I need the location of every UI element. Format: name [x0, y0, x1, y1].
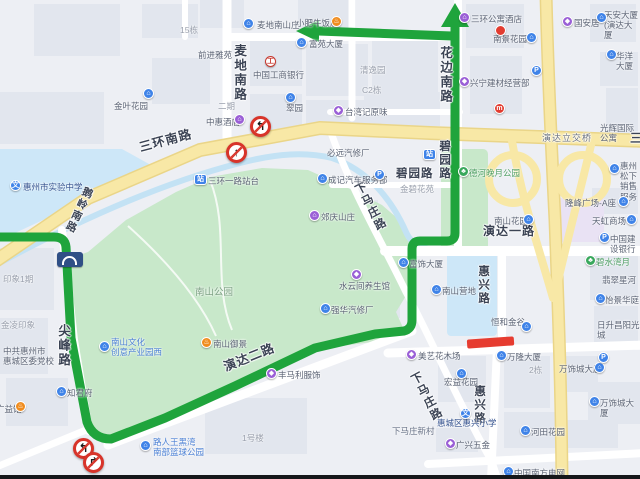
poi-label: 中国工商银行 — [253, 70, 304, 80]
poi-label: 富饰大厦 — [409, 259, 443, 269]
poi-label: 万饰城大厦 — [600, 398, 640, 418]
road-label: 惠兴路 — [473, 385, 485, 426]
road-label: 演达一路 — [483, 225, 535, 238]
hotel-icon: ⌂ — [234, 114, 245, 125]
poi-label: 南山公园 — [195, 287, 233, 298]
poi-label: 万隆大厦 — [507, 352, 541, 362]
poi-label: 富苑大厦 — [309, 39, 343, 49]
shopping-icon: ◆ — [406, 349, 417, 360]
poi-label: 金叶花园 — [114, 101, 148, 111]
poi-label: 兴宁建材经营部 — [470, 78, 530, 88]
road-label: 花边南路 — [438, 46, 451, 104]
park-icon: ♣ — [458, 166, 469, 177]
building-icon: ⌂ — [143, 88, 154, 99]
road-label: 三环南路 — [138, 128, 194, 155]
poi-label: 德河晚月公园 — [469, 168, 520, 178]
building-icon: ⌂ — [589, 396, 600, 407]
building-icon: ⌂ — [609, 163, 620, 174]
busstop-icon: 站 — [194, 174, 207, 185]
building-icon: ⌂ — [496, 350, 507, 361]
poi-label: 强华汽修厂 — [331, 305, 374, 315]
building-icon: ⌂ — [606, 49, 617, 60]
poi-label: 下马庄新村 — [392, 426, 435, 436]
poi-label: 三环公寓酒店 — [471, 14, 522, 24]
poi-label: 前进雅苑 — [198, 50, 232, 60]
poi-label: 必远汽修厂 — [327, 148, 370, 158]
road-label: 惠兴路 — [477, 265, 489, 306]
shopping-icon: ◆ — [333, 105, 344, 116]
poi-label: 15栋 — [180, 25, 198, 35]
turn-arrow-glyph: ↑ — [229, 145, 244, 160]
road-label: 下马庄路 — [352, 180, 388, 233]
poi-label: 碧水湾月 — [596, 257, 630, 267]
busstop-icon: 站 — [423, 149, 436, 160]
building-icon: ⌂ — [521, 321, 532, 332]
building-icon: ⌂ — [317, 173, 328, 184]
parking-icon: P — [374, 169, 385, 180]
building-icon: ⌂ — [456, 368, 467, 379]
school-icon: 文 — [10, 180, 21, 191]
bridge-icon — [57, 252, 83, 267]
poi-label: 恒和金谷 — [491, 317, 525, 327]
road-label: 鹅岭南路 — [63, 185, 94, 235]
poi-label: 二期 — [218, 101, 235, 111]
poi-label: C2栋 — [362, 85, 381, 95]
road-label: 麦地南路 — [232, 44, 245, 102]
building-icon: ⌂ — [431, 284, 442, 295]
poi-label: 翠园 — [286, 103, 303, 113]
label-layer: 三环南路三麦地南路花边南路碧园路碧园路下马庄路下马庄路演达一路演达二路尖峰路惠兴… — [0, 0, 640, 479]
poi-label: 南山御景 — [213, 339, 247, 349]
restaurant-icon: ♨ — [201, 337, 212, 348]
map-canvas[interactable]: 三环南路三麦地南路花边南路碧园路碧园路下马庄路下马庄路演达一路演达二路尖峰路惠兴… — [0, 0, 640, 479]
shopping-icon: ◆ — [266, 368, 277, 379]
poi-label: 南山文化 创意产业园西 — [111, 337, 162, 357]
parking-icon: P — [599, 232, 610, 243]
poi-label: 清逸园 — [360, 65, 386, 75]
turn-arrow-glyph: ↰ — [253, 119, 268, 134]
restaurant-icon: ♨ — [15, 401, 26, 412]
poi-label: 水云间养生馆 — [339, 281, 390, 291]
poi-label: 麦地南山庄 — [257, 20, 300, 30]
building-icon: ⌂ — [523, 214, 534, 225]
poi-label: 郊庆山庄 — [321, 212, 355, 222]
poi-label: 广兴五金 — [456, 440, 490, 450]
traffic-sign-no-straight: ↑ — [226, 142, 247, 163]
poi-label: 美艺花木场 — [418, 351, 461, 361]
building-icon: ⌂ — [320, 303, 331, 314]
poi-label: 印象1期 — [3, 274, 33, 284]
hotel-icon: ⌂ — [309, 210, 320, 221]
building-icon: ⌂ — [595, 293, 606, 304]
poi-label: 河田花园 — [531, 427, 565, 437]
restaurant-icon: ♨ — [331, 16, 342, 27]
poi-label: 惠州市实验中学 — [23, 182, 83, 192]
poi-label: 丰马利服饰 — [278, 370, 321, 380]
road-label: 演达立交桥 — [542, 134, 592, 143]
building-icon: ⌂ — [285, 92, 296, 103]
poi-label: 南山营地 — [442, 286, 476, 296]
poi-label: 1号楼 — [242, 433, 264, 443]
turn-arrow-glyph: ↱ — [86, 455, 101, 470]
poi-label: 知君府 — [67, 388, 93, 398]
shopping-icon: ◆ — [445, 438, 456, 449]
building-icon: ⌂ — [594, 362, 605, 373]
road-label: 三 — [630, 132, 640, 145]
poi-label: 天安大厦 (演达大厦 — [604, 10, 640, 41]
poi-label: 中共惠州市 惠城区委党校 — [3, 346, 54, 366]
road-label: 碧园路 — [396, 168, 434, 180]
poi-label: 日升昌阳光城 — [597, 320, 640, 340]
poi-label: 台湾记原味 — [345, 107, 388, 117]
poi-label: 金凌印象 — [1, 320, 35, 330]
school-icon: 文 — [460, 408, 471, 419]
traffic-sign-no-left-turn: ↰ — [250, 116, 271, 137]
parking-icon: P — [598, 352, 609, 363]
building-icon: ⌂ — [296, 37, 307, 48]
poi-label: 金碧花苑 — [400, 184, 434, 194]
building-icon: ⌂ — [243, 18, 254, 29]
building-icon: ⌂ — [398, 257, 409, 268]
park-icon: ♣ — [585, 255, 596, 266]
poi-label: 三环一路站台 — [208, 176, 259, 186]
building-icon: ⌂ — [99, 341, 110, 352]
poi-label: 惠城区惠兴小学 — [437, 418, 497, 428]
poi-label: 怡景华庭 — [605, 295, 639, 305]
marker-icon — [495, 25, 506, 36]
road-label: 碧园路 — [438, 140, 450, 181]
hotel-icon: ⌂ — [459, 12, 470, 23]
bank-icon: 工 — [265, 56, 276, 67]
bottom-bar — [0, 475, 640, 479]
poi-label: 华洋大厦 — [616, 51, 640, 71]
building-icon: ⌂ — [520, 425, 531, 436]
poi-label: 中国建设银行 — [610, 234, 640, 254]
traffic-sign-no-right-turn: ↱ — [83, 452, 104, 473]
poi-label: 2栋 — [529, 365, 542, 375]
building-icon: ⌂ — [56, 386, 67, 397]
poi-label: 翡翠星河 — [602, 275, 636, 285]
fastfood-icon: m — [494, 103, 505, 114]
shopping-icon: ◆ — [459, 76, 470, 87]
poi-label: 天虹商场 — [592, 216, 626, 226]
parking-icon: P — [531, 65, 542, 76]
shopping-icon: ◆ — [562, 16, 573, 27]
building-icon: ⌂ — [526, 32, 537, 43]
road-label: 尖峰路 — [56, 324, 69, 368]
shopping-icon: ◆ — [351, 269, 362, 280]
building-icon: ⌂ — [618, 196, 629, 207]
building-icon: ⌂ — [626, 214, 637, 225]
poi-label: 路人王黑湾 南部篮球公园 — [153, 437, 204, 457]
building-icon: ⌂ — [596, 12, 607, 23]
road-label: 下马庄路 — [408, 370, 444, 423]
poi-label: 隆峰广场-A座 — [565, 198, 616, 208]
building-icon: ⌂ — [140, 440, 151, 451]
